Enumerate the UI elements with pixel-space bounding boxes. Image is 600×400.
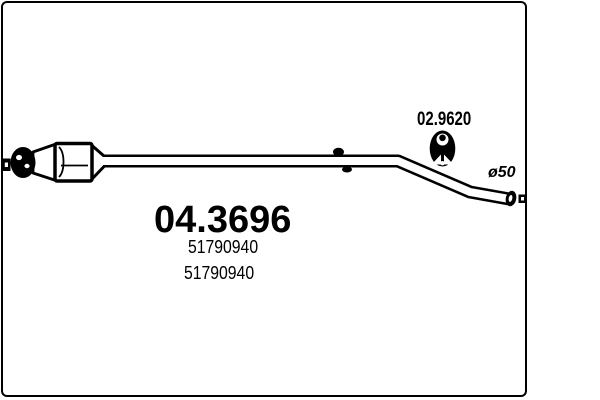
- rubber-hanger-icon: [430, 131, 456, 167]
- weld-boss-top-icon: [333, 148, 344, 156]
- weld-boss-bottom-icon: [342, 167, 352, 173]
- exhaust-pipe: [103, 161, 509, 199]
- pipe-diameter-label: ø50: [488, 165, 516, 181]
- mounting-bracket: [519, 195, 527, 204]
- catalog-drawing-page: 02.9620 ø50 04.3696 51790940 51790940: [0, 0, 600, 400]
- oe-number: 51790940: [188, 238, 258, 256]
- ball-joint: [11, 147, 36, 178]
- main-part-number: 04.3696: [154, 201, 291, 239]
- catalytic-converter: [33, 144, 104, 182]
- hanger-part-code-label: 02.9620: [417, 110, 471, 129]
- outlet-cone: [93, 146, 105, 179]
- oe-number: 51790940: [184, 264, 254, 282]
- exhaust-part-diagram: [0, 0, 600, 400]
- inlet-flange: [3, 159, 11, 172]
- inlet-cone: [33, 144, 56, 181]
